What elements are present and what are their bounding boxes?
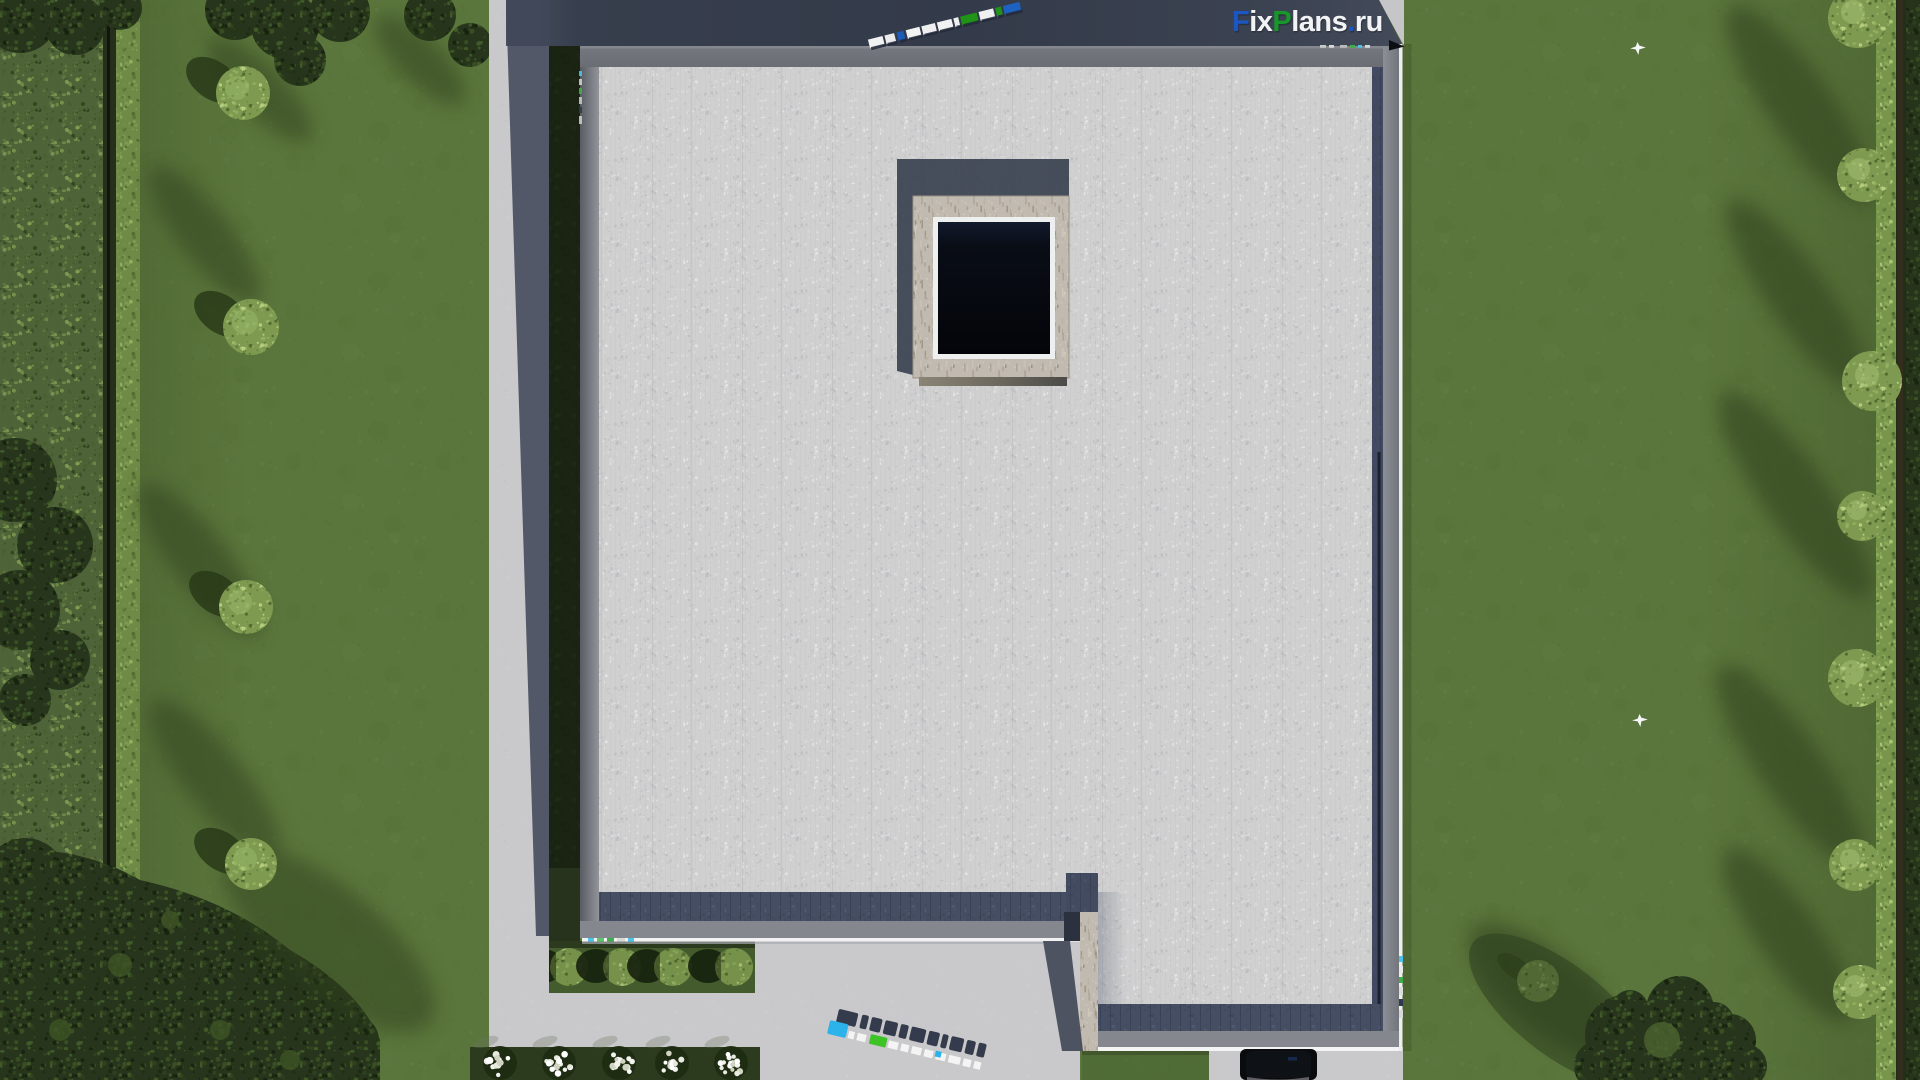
- svg-text:FixPlans.ru: FixPlans.ru: [1232, 6, 1383, 38]
